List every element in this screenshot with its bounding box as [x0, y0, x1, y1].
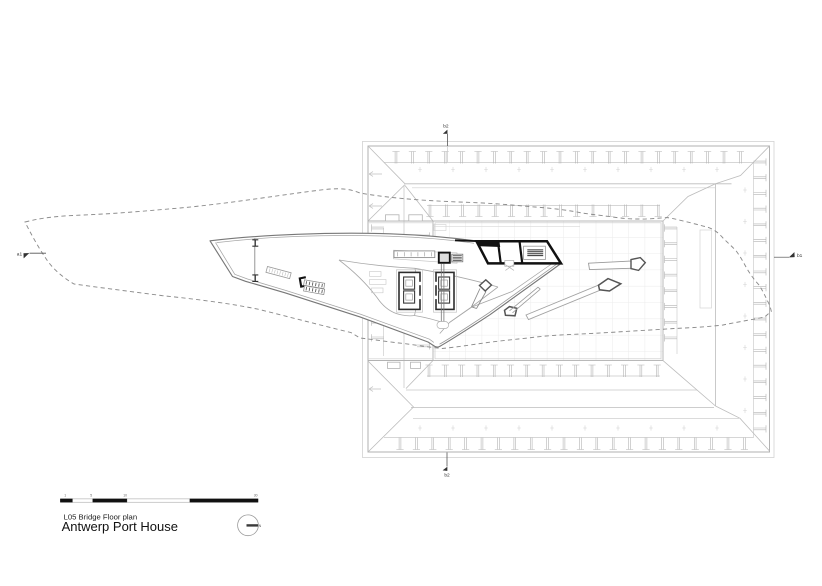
- svg-text:Antwerp Port House: Antwerp Port House: [62, 519, 178, 534]
- svg-text:b2: b2: [443, 124, 449, 130]
- svg-text:N: N: [259, 524, 262, 528]
- svg-text:10: 10: [123, 494, 127, 498]
- svg-text:a1: a1: [17, 251, 23, 257]
- svg-text:b2: b2: [444, 472, 450, 478]
- svg-text:b1: b1: [797, 253, 803, 259]
- svg-text:30: 30: [254, 494, 258, 498]
- svg-text:1: 1: [64, 494, 66, 498]
- svg-text:5: 5: [90, 494, 92, 498]
